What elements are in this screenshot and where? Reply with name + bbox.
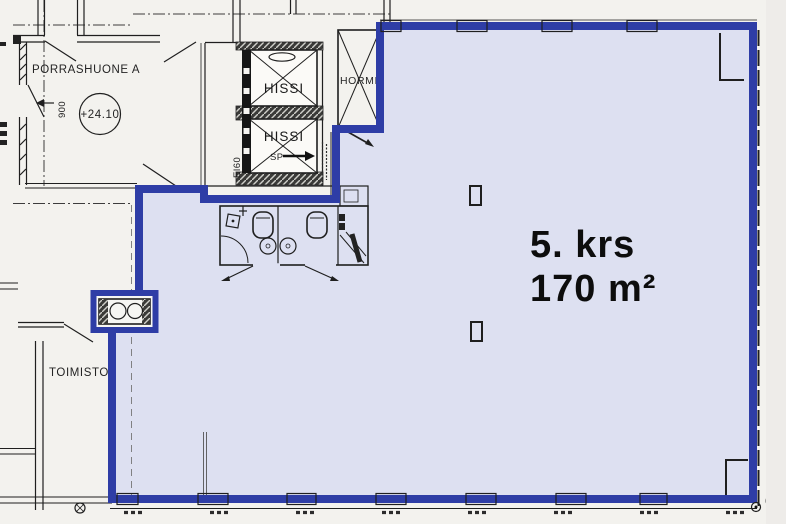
stairwell-top-wall [13,35,160,44]
shaft-wall-hatch [236,172,323,185]
left-exterior-wall [20,42,27,185]
unit-highlight [112,26,753,499]
door-swing [143,164,176,186]
fire-rating-label: EI60 [232,157,243,178]
hormi-label: HORMI [340,75,378,87]
counterweight-symbol [269,53,295,61]
stairwell-label: PORRASHUONE A [32,64,140,76]
door-width-value: 900 [57,101,68,118]
left-edge-marks [0,42,7,145]
hormi-shaft: HORMI [338,30,380,128]
offices-label: TOIMISTOT [49,367,117,379]
level-mark-value: +24.10 [80,109,119,121]
door-swing [164,42,196,62]
elevator-upper-label: HISSI [264,81,304,96]
unit-floor-label: 5. krs [530,224,635,266]
door-width-arrowhead [36,99,44,107]
smoke-vent-label: SP [270,152,283,163]
service-box [94,293,156,330]
elevator-lower-label: HISSI [264,129,304,144]
floor-plan-page: PORRASHUONE A +24.10 900 HISSI [0,0,786,524]
shaft-wall-hatch [236,42,323,50]
elevator-door-band [242,50,251,173]
unit-area-label: 170 m² [530,268,656,310]
elevator-shaft-upper: HISSI [249,50,317,106]
door-swing [45,41,76,61]
elevator-shaft-lower: HISSI SP [249,119,317,173]
floor-plan-drawing: PORRASHUONE A +24.10 900 HISSI [0,0,786,524]
elevator-block: HISSI HISSI SP EI60 [201,42,336,196]
scan-edge [766,0,786,524]
